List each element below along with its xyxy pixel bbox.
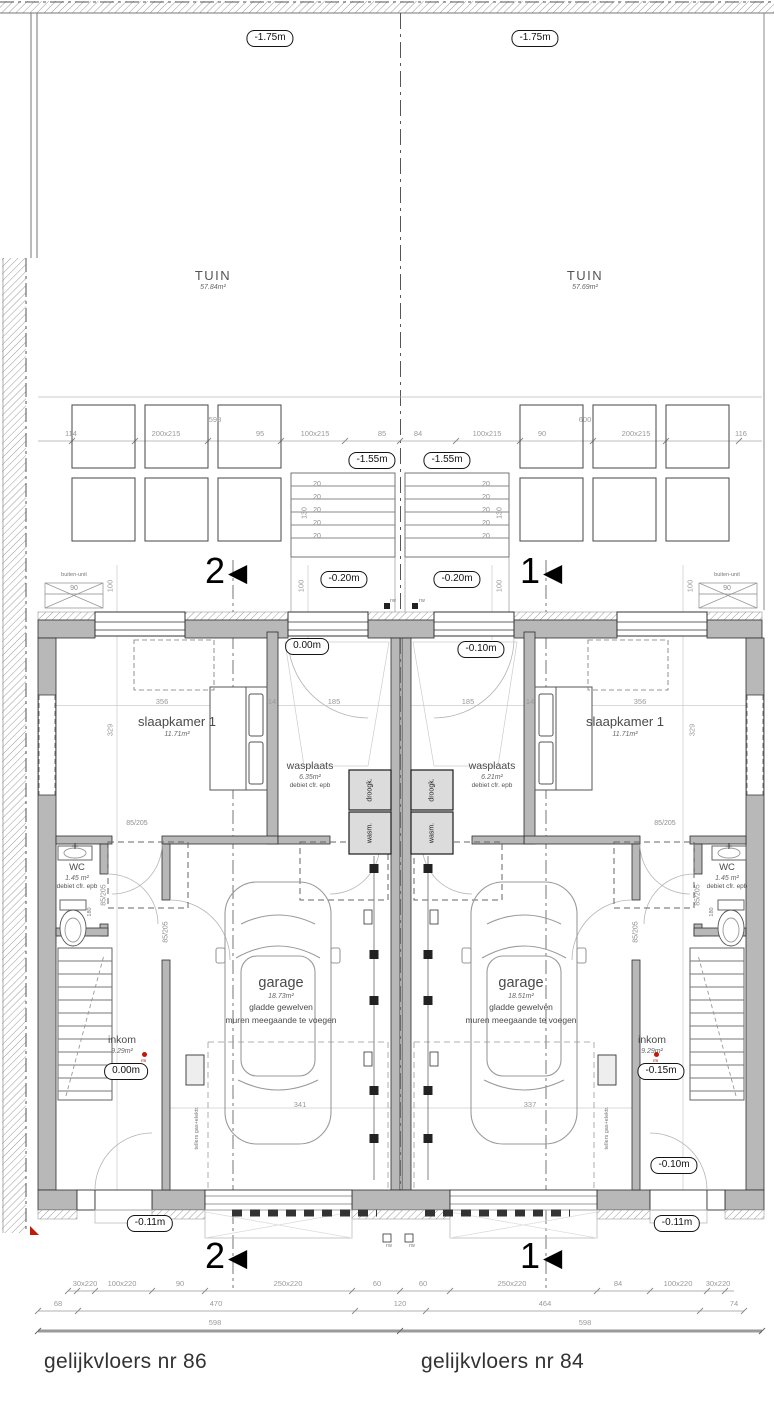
washer-label-right: wasm. xyxy=(429,823,436,843)
level-badge-terrace-left: -1.55m xyxy=(348,452,395,469)
dim-door: 85/205 xyxy=(654,820,675,827)
room-label-wasplaats-left: wasplaats 6.35m² debiet cfr. epb xyxy=(287,760,334,791)
dim-door: 85/205 xyxy=(695,884,702,905)
dim-stair-width: 130 xyxy=(302,507,309,519)
section-arrow-icon: ◀ xyxy=(228,1246,247,1271)
dim-garage-length-left: 341 xyxy=(294,1100,307,1109)
room-label-slaapkamer-left: slaapkamer 1 11.71m² xyxy=(138,714,216,739)
dim-terrace: 100x215 xyxy=(301,429,330,438)
dim-facade: 100x220 xyxy=(664,1279,693,1288)
level-badge-rear-right: -0.20m xyxy=(433,571,480,588)
dim-stair-rise: 20 xyxy=(482,507,490,514)
level-badge-inkom-right: -0.15m xyxy=(637,1063,684,1080)
dim-stair-width: 130 xyxy=(497,507,504,519)
outdoor-unit-label-left: buiten-unit xyxy=(61,572,87,578)
level-badge-rear-left: -0.20m xyxy=(320,571,367,588)
dim-stair-rise: 20 xyxy=(313,520,321,527)
dim-rear-depth: 100 xyxy=(686,580,695,593)
floor-plan-linework xyxy=(0,0,774,1425)
dim-door: 85/205 xyxy=(101,884,108,905)
garden-label-left: TUIN 57.84m² xyxy=(195,268,231,292)
dim-terrace-total-left: 598 xyxy=(209,415,222,424)
room-label-garage-right: garage 18.51m² gladde gewelven muren mee… xyxy=(465,974,576,1026)
section-arrow-icon: ◀ xyxy=(543,1246,562,1271)
dim-total-left: 598 xyxy=(209,1318,222,1327)
red-corner-marker xyxy=(30,1226,39,1235)
smoke-detector-dot-left xyxy=(142,1052,147,1057)
rainwater-label: rw xyxy=(386,1243,392,1249)
dim-terrace: 116 xyxy=(735,429,747,438)
dim-bedroom: 14 xyxy=(526,697,534,706)
section-arrow-icon: ◀ xyxy=(543,561,562,586)
dim-terrace: 90 xyxy=(538,429,546,438)
dim-facade: 30x220 xyxy=(73,1279,98,1288)
dim-terrace: 200x215 xyxy=(152,429,181,438)
level-badge-terrace-right: -1.55m xyxy=(423,452,470,469)
outdoor-unit-label-right: buiten-unit xyxy=(714,572,740,578)
dim-stair-rise: 20 xyxy=(313,507,321,514)
level-badge-ground-right: -0.10m xyxy=(457,641,504,658)
dim-bedroom: 356 xyxy=(156,697,169,706)
dim-door-height: 180 xyxy=(709,907,715,916)
level-badge-ground-left: 0.00m xyxy=(285,638,329,655)
room-label-slaapkamer-right: slaapkamer 1 11.71m² xyxy=(586,714,664,739)
room-label-inkom-right: inkom 9.29m² xyxy=(638,1034,666,1056)
dim-garage-length-right: 337 xyxy=(524,1100,537,1109)
dim-terrace: 95 xyxy=(256,429,264,438)
dim-terrace-total-right: 600 xyxy=(579,415,592,424)
room-label-garage-left: garage 18.73m² gladde gewelven muren mee… xyxy=(225,974,336,1026)
plan-title-left: gelijkvloers nr 86 xyxy=(44,1350,207,1374)
dim-terrace: 200x215 xyxy=(622,429,651,438)
outdoor-unit-dim-right: 90 xyxy=(723,585,731,592)
dim-terrace: 100x215 xyxy=(473,429,502,438)
garden-label-right: TUIN 57.69m² xyxy=(567,268,603,292)
dim-facade: 60 xyxy=(419,1279,427,1288)
dim-bedroom-depth: 329 xyxy=(106,724,115,737)
dim-facade: 90 xyxy=(176,1279,184,1288)
dim-stair-rise: 20 xyxy=(482,481,490,488)
dim-stair-rise: 20 xyxy=(482,533,490,540)
floor-plan-page: -1.75m -1.75m -1.55m -1.55m -0.20m -0.20… xyxy=(0,0,774,1425)
dim-door-height: 180 xyxy=(87,907,93,916)
plan-title-right: gelijkvloers nr 84 xyxy=(421,1350,584,1374)
dim-door: 85/205 xyxy=(126,820,147,827)
dim-overall: 470 xyxy=(210,1299,223,1308)
room-label-inkom-left: inkom 9.29m² xyxy=(108,1034,136,1056)
level-badge-garden-right: -1.75m xyxy=(511,30,558,47)
section-marker-1-bottom: 1◀ xyxy=(520,1238,562,1274)
level-badge-outside-right: -0.11m xyxy=(654,1215,700,1232)
dim-bedroom-depth: 329 xyxy=(688,724,697,737)
section-marker-2-top: 2◀ xyxy=(205,553,247,589)
rainwater-label: rw xyxy=(419,598,425,604)
level-badge-inkom-left: 0.00m xyxy=(104,1063,148,1080)
dim-terrace: 114 xyxy=(65,429,77,438)
section-marker-2-bottom: 2◀ xyxy=(205,1238,247,1274)
dim-bedroom: 14 xyxy=(268,697,276,706)
dryer-label-right: droogk. xyxy=(429,778,436,801)
dim-door: 85/205 xyxy=(633,921,640,942)
dim-overall: 68 xyxy=(54,1299,62,1308)
smoke-detector-dot-right xyxy=(654,1052,659,1057)
dim-stair-rise: 20 xyxy=(482,494,490,501)
meters-label-right: tellers gas+elektr. xyxy=(604,1107,610,1150)
level-badge-garden-left: -1.75m xyxy=(246,30,293,47)
dim-terrace: 84 xyxy=(414,429,422,438)
dim-rear-depth: 100 xyxy=(495,580,504,593)
level-badge-outside-left: -0.11m xyxy=(127,1215,173,1232)
dim-stair-rise: 20 xyxy=(313,481,321,488)
room-label-wasplaats-right: wasplaats 6.21m² debiet cfr. epb xyxy=(469,760,516,791)
section-marker-1-top: 1◀ xyxy=(520,553,562,589)
dim-facade: 30x220 xyxy=(706,1279,731,1288)
dim-stair-rise: 20 xyxy=(313,533,321,540)
dim-rear-depth: 100 xyxy=(297,580,306,593)
room-label-wc-left: WC 1.45 m² debiet cfr. epb xyxy=(57,862,98,892)
dim-overall: 74 xyxy=(730,1299,738,1308)
dim-facade: 60 xyxy=(373,1279,381,1288)
dim-facade: 84 xyxy=(614,1279,622,1288)
section-arrow-icon: ◀ xyxy=(228,561,247,586)
level-badge-front-right: -0.10m xyxy=(650,1157,697,1174)
dim-overall: 120 xyxy=(394,1299,407,1308)
dim-bedroom: 185 xyxy=(328,697,341,706)
dim-rear-depth: 100 xyxy=(106,580,115,593)
dim-overall: 464 xyxy=(539,1299,552,1308)
dryer-label-left: droogk. xyxy=(367,778,374,801)
meters-label-left: tellers gas+elektr. xyxy=(194,1107,200,1150)
outdoor-unit-dim-left: 90 xyxy=(70,585,78,592)
dim-stair-rise: 20 xyxy=(482,520,490,527)
rainwater-label: rw xyxy=(390,598,396,604)
dim-bedroom: 185 xyxy=(462,697,475,706)
dim-stair-rise: 20 xyxy=(313,494,321,501)
washer-label-left: wasm. xyxy=(367,823,374,843)
room-label-wc-right: WC 1.45 m² debiet cfr. epb xyxy=(707,862,748,892)
rainwater-label: rw xyxy=(409,1243,415,1249)
dim-door: 85/205 xyxy=(163,921,170,942)
dim-facade: 250x220 xyxy=(498,1279,527,1288)
dim-terrace: 85 xyxy=(378,429,386,438)
dim-total-right: 598 xyxy=(579,1318,592,1327)
dim-facade: 100x220 xyxy=(108,1279,137,1288)
dim-bedroom: 356 xyxy=(634,697,647,706)
dim-facade: 250x220 xyxy=(274,1279,303,1288)
